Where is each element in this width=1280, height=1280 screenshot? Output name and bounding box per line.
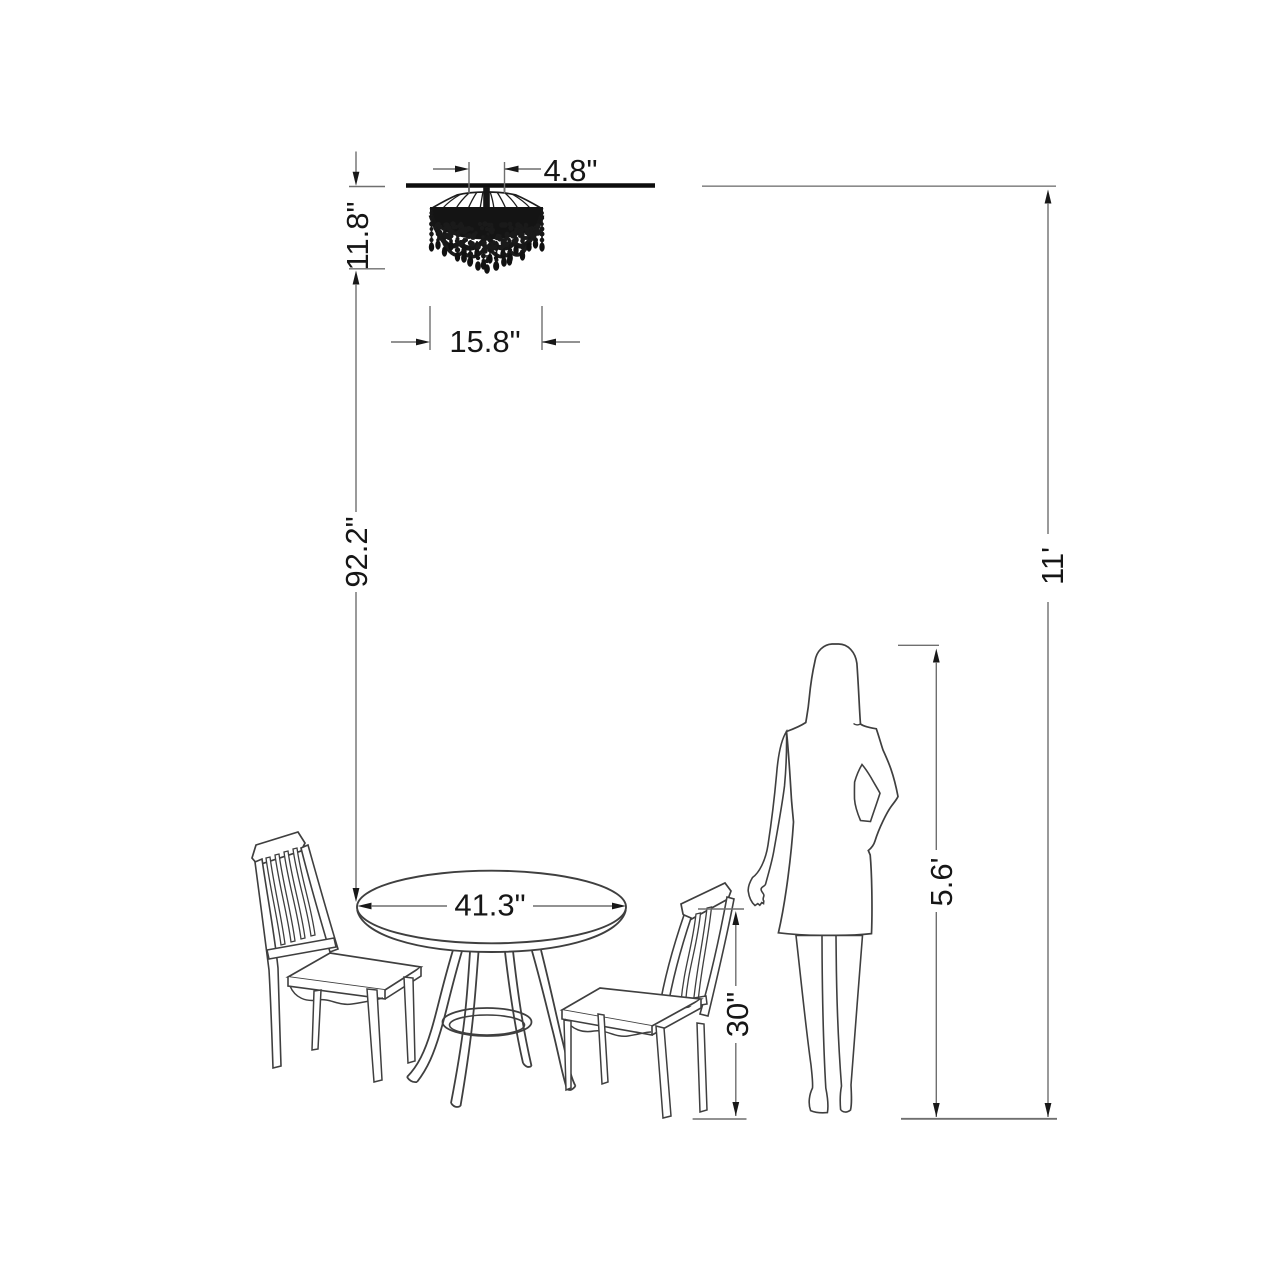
svg-text:11': 11' — [1035, 547, 1070, 585]
svg-text:5.6': 5.6' — [924, 857, 959, 906]
svg-text:30": 30" — [720, 992, 755, 1038]
svg-text:15.8": 15.8" — [449, 324, 520, 359]
svg-text:41.3": 41.3" — [454, 888, 525, 923]
svg-text:11.8": 11.8" — [340, 201, 375, 270]
svg-text:92.2": 92.2" — [339, 516, 374, 587]
svg-text:4.8": 4.8" — [543, 153, 597, 188]
